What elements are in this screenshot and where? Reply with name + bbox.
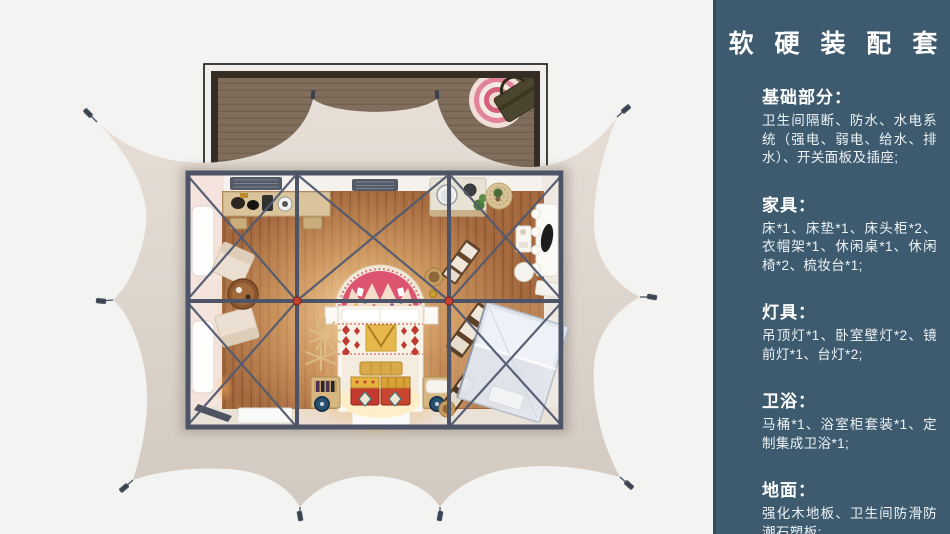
- table-lamp: [430, 291, 437, 298]
- spec-section-basics: 基础部分： 卫生间隔断、防水、水电系统（强电、弱电、给水、排水）、开关面板及插座…: [762, 83, 937, 168]
- floorplan-render: [0, 0, 713, 534]
- woven-floor-mat: [486, 183, 512, 209]
- ceiling-vent-left: [230, 177, 282, 190]
- nightstand-left: [325, 307, 338, 324]
- spec-section-bathroom: 卫浴： 马桶*1、浴室柜套装*1、定制集成卫浴*1;: [762, 387, 937, 453]
- spec-section-flooring: 地面： 强化木地板、卫生间防滑防潮石塑板;: [762, 476, 937, 534]
- ceiling-vent-right: [352, 179, 398, 191]
- spec-body-flooring: 强化木地板、卫生间防滑防潮石塑板;: [762, 505, 937, 534]
- nightstand-right: [424, 307, 438, 324]
- spec-heading-furniture: 家具：: [762, 191, 937, 216]
- painted-chest-right: [381, 377, 410, 406]
- window-left-lower: [192, 321, 214, 393]
- sidebar-title: 软 硬 装 配 套: [716, 24, 950, 60]
- spec-body-basics: 卫生间隔断、防水、水电系统（强电、弱电、给水、排水）、开关面板及插座;: [762, 112, 937, 168]
- painted-chest-left: [351, 377, 379, 406]
- desk-chair-right: [303, 217, 322, 229]
- spec-heading-flooring: 地面：: [762, 476, 937, 501]
- spec-section-lighting: 灯具： 吊顶灯*1、卧室壁灯*2、镜前灯*1、台灯*2;: [762, 298, 937, 364]
- spec-heading-basics: 基础部分：: [762, 83, 937, 108]
- spec-heading-bathroom: 卫浴：: [762, 387, 937, 412]
- potted-plant: [494, 189, 503, 198]
- foot-bench: [360, 362, 402, 375]
- spec-body-bathroom: 马桶*1、浴室柜套装*1、定制集成卫浴*1;: [762, 416, 937, 453]
- spec-heading-lighting: 灯具：: [762, 298, 937, 323]
- spec-sections: 基础部分： 卫生间隔断、防水、水电系统（强电、弱电、给水、排水）、开关面板及插座…: [716, 83, 950, 534]
- wok-pan: [464, 184, 476, 196]
- brochure-page: 软 硬 装 配 套 基础部分： 卫生间隔断、防水、水电系统（强电、弱电、给水、排…: [0, 0, 950, 534]
- round-side-table: [228, 279, 258, 309]
- joint-node-right: [445, 297, 453, 305]
- gold-throw-blanket: [366, 325, 396, 351]
- wine-crate: [311, 377, 340, 411]
- room: [186, 171, 569, 440]
- joint-node-left: [293, 297, 301, 305]
- spec-body-furniture: 床*1、床垫*1、床头柜*2、衣帽架*1、休闲桌*1、休闲椅*2、梳妆台*1;: [762, 220, 937, 276]
- spec-sidebar: 软 硬 装 配 套 基础部分： 卫生间隔断、防水、水电系统（强电、弱电、给水、排…: [713, 0, 950, 534]
- vanity-side-table: [516, 226, 531, 252]
- window-left-upper: [192, 206, 214, 276]
- spec-section-furniture: 家具： 床*1、床垫*1、床头柜*2、衣帽架*1、休闲桌*1、休闲椅*2、梳妆台…: [762, 191, 937, 276]
- door-mat-left: [238, 408, 292, 423]
- spec-body-lighting: 吊顶灯*1、卧室壁灯*2、镜前灯*1、台灯*2;: [762, 327, 937, 364]
